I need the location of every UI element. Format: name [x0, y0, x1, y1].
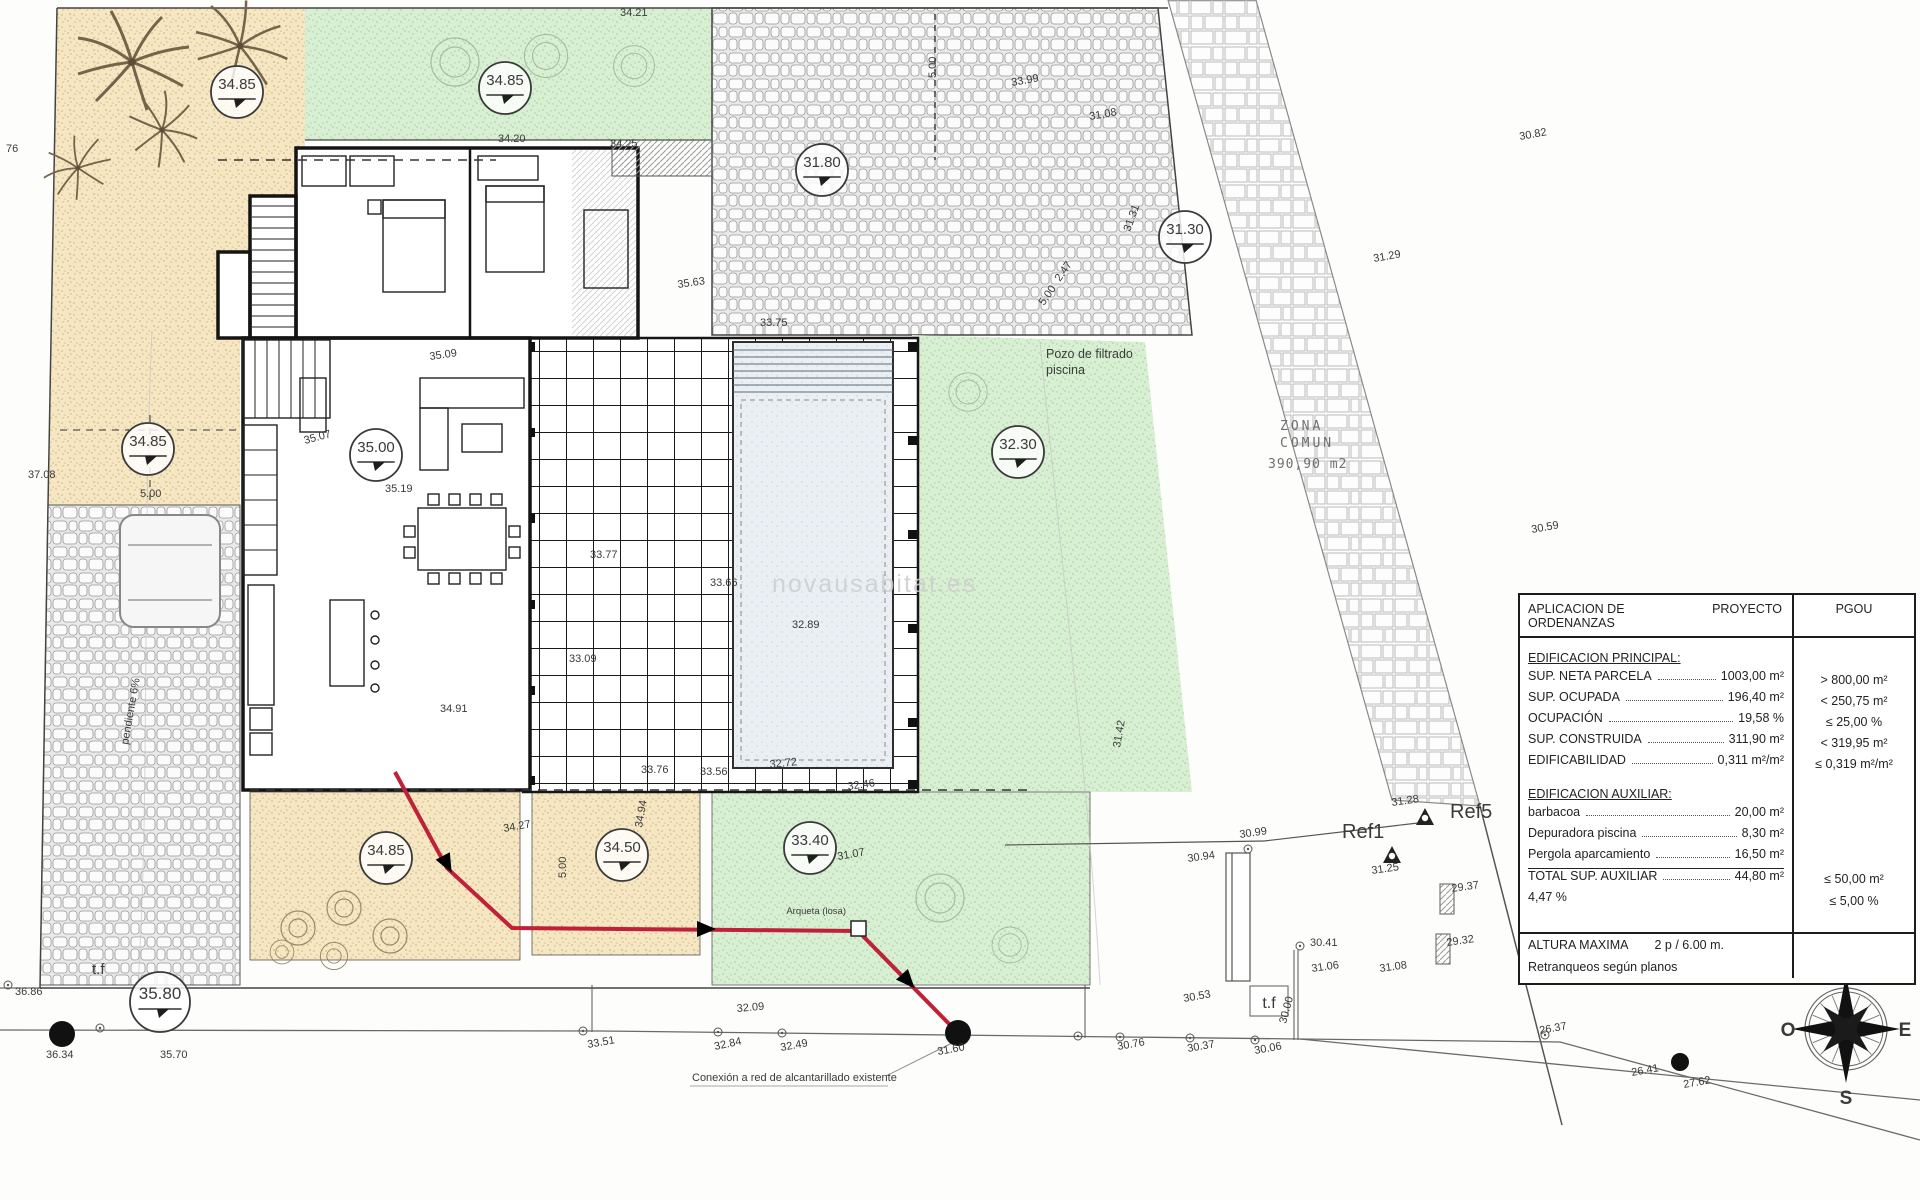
elevation-marker: 31.80	[796, 144, 848, 196]
table-row-pgou	[1792, 956, 1914, 978]
swimming-pool	[733, 342, 893, 768]
table-section-title: EDIFICACION PRINCIPAL:	[1520, 638, 1792, 669]
arqueta-box	[851, 921, 866, 936]
survey-label: 32.84	[713, 1035, 742, 1052]
survey-label: 33.56	[700, 766, 728, 778]
survey-label: 34.91	[440, 703, 468, 715]
survey-label: 5.00	[927, 57, 939, 78]
survey-label: 34.21	[620, 7, 648, 19]
survey-label: 32.89	[792, 619, 820, 631]
survey-label: 37.08	[28, 469, 56, 481]
black-dot-layer	[49, 1020, 1689, 1071]
row-proyecto-value: 311,90 m²	[1729, 732, 1784, 746]
zona-line1: ZONA	[1280, 418, 1347, 435]
elevation-marker: 35.80	[130, 972, 190, 1032]
site-plan-canvas: 34.8534.8531.8031.3034.8535.0032.3034.85…	[0, 0, 1920, 1200]
survey-label: 26.37	[1538, 1020, 1567, 1037]
table-row: SUP. OCUPADA196,40 m²	[1520, 690, 1792, 711]
table-header-col3: PGOU	[1792, 595, 1914, 636]
row-label: TOTAL SUP. AUXILIAR	[1528, 869, 1657, 883]
table-row: ALTURA MAXIMA2 p / 6.00 m.	[1520, 932, 1792, 956]
svg-text:32.30: 32.30	[999, 436, 1037, 453]
survey-label: 34.20	[498, 133, 526, 145]
table-section-title: EDIFICACION AUXILIAR:	[1520, 774, 1792, 805]
survey-label: 30.37	[1186, 1038, 1215, 1055]
svg-text:33.40: 33.40	[791, 832, 829, 849]
table-row: Retranqueos según planos	[1520, 956, 1792, 978]
survey-tick	[1251, 1036, 1259, 1044]
row-proyecto-value: 19,58 %	[1738, 711, 1784, 725]
row-pgou-value: < 250,75 m²	[1820, 694, 1887, 708]
survey-label: 35.19	[385, 483, 413, 495]
watermark: novausabitat.es	[772, 570, 977, 599]
table-section-pgou	[1792, 638, 1914, 669]
compass-rose	[1792, 975, 1900, 1083]
row-pgou-value: < 319,95 m²	[1820, 736, 1887, 750]
row-proyecto-value: 196,40 m²	[1728, 690, 1784, 704]
survey-label: 31.28	[1391, 793, 1420, 809]
row-proyecto-value: 0,311 m²/m²	[1718, 753, 1784, 767]
table-header-col2: PROYECTO	[1712, 602, 1782, 630]
compass-label-o: O	[1781, 1020, 1796, 1041]
row-proyecto-value: 20,00 m²	[1735, 805, 1784, 819]
table-spacer	[1792, 911, 1914, 932]
dotted-leader	[1648, 742, 1724, 743]
survey-label: 33.76	[641, 764, 669, 776]
table-row: SUP. NETA PARCELA1003,00 m²	[1520, 669, 1792, 690]
arqueta-label: Arqueta (losa)	[786, 906, 846, 917]
ref1-label: Ref1	[1342, 821, 1384, 843]
svg-text:34.85: 34.85	[486, 72, 524, 89]
survey-label: 36.86	[15, 986, 43, 998]
table-header-col1: APLICACION DE ORDENANZAS	[1528, 602, 1712, 630]
table-row: 4,47 %	[1520, 890, 1792, 911]
row-pgou-value: ≤ 50,00 m²	[1824, 872, 1884, 886]
survey-label: 26.41	[1630, 1062, 1659, 1079]
survey-label: 33.66	[710, 577, 738, 589]
survey-label: 35.63	[677, 275, 706, 291]
survey-label: 30.76	[1116, 1036, 1145, 1053]
survey-label: 30.59	[1530, 519, 1559, 536]
table-row-pgou	[1792, 847, 1914, 868]
table-body: EDIFICACION PRINCIPAL:SUP. NETA PARCELA1…	[1520, 638, 1914, 978]
row-label: SUP. NETA PARCELA	[1528, 669, 1652, 683]
survey-dot	[49, 1021, 75, 1047]
zona-line2: COMUN	[1280, 435, 1347, 452]
elevation-marker: 31.30	[1159, 211, 1211, 263]
svg-text:34.85: 34.85	[218, 76, 256, 93]
table-row-pgou: < 250,75 m²	[1792, 690, 1914, 711]
row-proyecto-value: 8,30 m²	[1742, 826, 1784, 840]
compass-label-s: S	[1840, 1088, 1853, 1109]
survey-label: 31.25	[1371, 861, 1400, 877]
table-row-pgou: > 800,00 m²	[1792, 669, 1914, 690]
survey-label: 34.25	[610, 138, 638, 150]
table-row: OCUPACIÓN19,58 %	[1520, 711, 1792, 732]
table-row-pgou: ≤ 5,00 %	[1792, 890, 1914, 911]
survey-label: 30.99	[1239, 825, 1268, 841]
row-label: SUP. CONSTRUIDA	[1528, 732, 1642, 746]
svg-text:35.00: 35.00	[357, 439, 395, 456]
compass-label-e: E	[1899, 1020, 1912, 1041]
ordinance-table: APLICACION DE ORDENANZAS PROYECTO PGOU E…	[1518, 593, 1916, 985]
dotted-leader	[1609, 721, 1733, 722]
survey-dot	[1671, 1053, 1689, 1071]
row-proyecto-value: 44,80 m²	[1735, 869, 1784, 883]
survey-label: 29.37	[1451, 879, 1480, 895]
table-row-pgou: ≤ 25,00 %	[1792, 711, 1914, 732]
survey-label: 32.49	[779, 1037, 808, 1054]
row-label: EDIFICABILIDAD	[1528, 753, 1626, 767]
row-pgou-value: ≤ 5,00 %	[1829, 894, 1878, 908]
row-proyecto-value: 4,47 %	[1528, 890, 1567, 904]
pozo-label-line1: Pozo de filtrado	[1046, 347, 1133, 361]
dotted-leader	[1632, 763, 1713, 764]
svg-text:35.80: 35.80	[139, 984, 182, 1003]
survey-label: 35.70	[160, 1049, 188, 1061]
table-row: barbacoa20,00 m²	[1520, 805, 1792, 826]
elevation-marker: 33.40	[784, 822, 836, 874]
plain-value: 2 p / 6.00 m.	[1654, 938, 1723, 952]
elevation-marker: 34.85	[211, 66, 263, 118]
conexion-label: Conexión a red de alcantarillado existen…	[692, 1072, 897, 1084]
survey-label: 30.53	[1182, 988, 1211, 1005]
survey-label: 36.34	[46, 1049, 74, 1061]
table-row: TOTAL SUP. AUXILIAR44,80 m²	[1520, 868, 1792, 890]
survey-label: 30.94	[1187, 849, 1216, 865]
survey-label: 5.00	[140, 488, 161, 500]
tf-right-label: t.f	[1262, 995, 1276, 1012]
svg-text:34.85: 34.85	[129, 433, 167, 450]
table-row: SUP. CONSTRUIDA311,90 m²	[1520, 732, 1792, 753]
survey-label: 76	[6, 143, 18, 155]
zona-area: 390,90 m2	[1268, 456, 1347, 473]
row-label: Pergola aparcamiento	[1528, 847, 1650, 861]
survey-tick	[1296, 942, 1304, 950]
dotted-leader	[1626, 700, 1723, 701]
survey-label: 32.09	[736, 1001, 764, 1015]
car	[120, 515, 220, 627]
elevation-marker: 35.00	[350, 429, 402, 481]
dotted-leader	[1663, 879, 1729, 880]
survey-label: 33.09	[569, 653, 597, 665]
survey-label: 33.77	[590, 549, 618, 561]
plain-label: Retranqueos según planos	[1528, 960, 1677, 974]
svg-text:34.50: 34.50	[603, 839, 641, 856]
svg-text:31.80: 31.80	[803, 154, 841, 171]
row-pgou-value: ≤ 0,319 m²/m²	[1815, 757, 1893, 771]
survey-label: 31.60	[936, 1041, 965, 1058]
survey-label: 30.82	[1518, 126, 1547, 143]
table-section-pgou	[1792, 774, 1914, 805]
survey-label: 5.00	[557, 857, 569, 878]
survey-tick	[1244, 845, 1252, 853]
elevation-marker: 34.85	[122, 423, 174, 475]
table-row: Pergola aparcamiento16,50 m²	[1520, 847, 1792, 868]
dotted-leader	[1656, 857, 1729, 858]
ref5-label: Ref5	[1450, 801, 1492, 823]
table-row: Depuradora piscina8,30 m²	[1520, 826, 1792, 847]
row-proyecto-value: 16,50 m²	[1735, 847, 1784, 861]
elevation-marker: 32.30	[992, 426, 1044, 478]
tf-left-label: t.f	[92, 961, 105, 978]
survey-label: 33.51	[586, 1034, 615, 1051]
row-label: OCUPACIÓN	[1528, 711, 1603, 725]
road-lines	[0, 988, 1920, 1140]
survey-label: 31.08	[1379, 959, 1408, 975]
survey-label: 30.41	[1310, 937, 1338, 949]
table-row-pgou: ≤ 0,319 m²/m²	[1792, 753, 1914, 774]
table-row-pgou	[1792, 805, 1914, 826]
dotted-leader	[1586, 815, 1730, 816]
survey-label: 31.06	[1311, 959, 1340, 975]
svg-text:34.85: 34.85	[367, 842, 405, 859]
survey-label: 29.32	[1446, 933, 1475, 949]
survey-label: 31.29	[1372, 248, 1401, 265]
elevation-marker: 34.50	[596, 829, 648, 881]
zona-comun-annotation: ZONA COMUN 390,90 m2	[1280, 418, 1347, 473]
svg-text:31.30: 31.30	[1166, 221, 1204, 238]
table-spacer	[1520, 911, 1792, 925]
section-title-text: EDIFICACION PRINCIPAL:	[1528, 638, 1784, 669]
table-header: APLICACION DE ORDENANZAS PROYECTO PGOU	[1520, 595, 1914, 638]
dotted-leader	[1642, 836, 1736, 837]
row-pgou-value: ≤ 25,00 %	[1826, 715, 1882, 729]
row-label: SUP. OCUPADA	[1528, 690, 1620, 704]
dotted-leader	[1658, 679, 1716, 680]
row-pgou-value: > 800,00 m²	[1820, 673, 1887, 687]
row-proyecto-value: 1003,00 m²	[1721, 669, 1784, 683]
elevation-marker: 34.85	[360, 832, 412, 884]
table-row-pgou: ≤ 50,00 m²	[1792, 868, 1914, 890]
pozo-label-line2: piscina	[1046, 363, 1085, 377]
table-row-pgou	[1792, 826, 1914, 847]
elevation-marker: 34.85	[479, 62, 531, 114]
plain-label: ALTURA MAXIMA	[1528, 938, 1628, 952]
table-row-pgou	[1792, 932, 1914, 956]
table-row: EDIFICABILIDAD0,311 m²/m²	[1520, 753, 1792, 774]
row-label: barbacoa	[1528, 805, 1580, 819]
survey-label: 33.75	[760, 317, 788, 329]
section-title-text: EDIFICACION AUXILIAR:	[1528, 774, 1784, 805]
table-row-pgou: < 319,95 m²	[1792, 732, 1914, 753]
row-label: Depuradora piscina	[1528, 826, 1636, 840]
survey-stations	[1383, 808, 1434, 863]
